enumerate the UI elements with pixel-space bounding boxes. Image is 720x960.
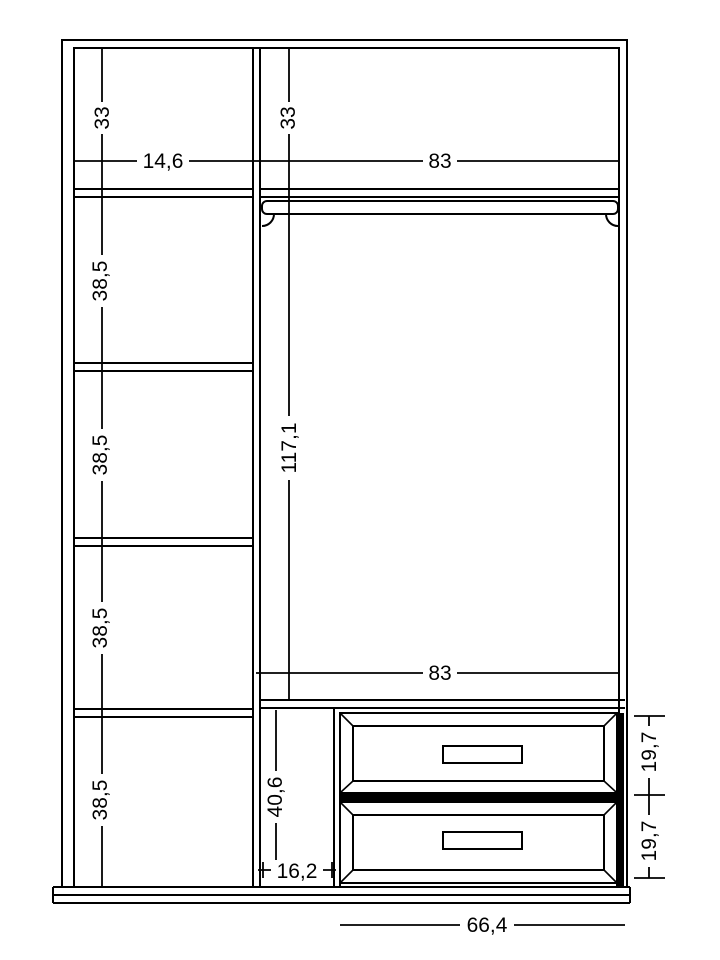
dim-value: 33 xyxy=(277,106,300,129)
base-plinth xyxy=(53,887,630,903)
dim-label-drawer-height-bottom: 19,7 xyxy=(638,815,661,867)
dim-value: 40,6 xyxy=(264,777,287,818)
dim-label-right-bottom-width: 83 xyxy=(423,662,457,685)
dim-value: 38,5 xyxy=(89,608,112,649)
technical-drawing-page: 33 14,6 33 83 38,5 38,5 117,1 38 xyxy=(0,0,720,960)
dim-value: 33 xyxy=(91,106,114,129)
dim-label-drawer-height-top: 19,7 xyxy=(638,726,661,778)
drawer-front-bevel xyxy=(353,726,604,781)
dim-label-slot-width: 16,2 xyxy=(271,860,323,883)
bevel-corner-line xyxy=(604,870,616,882)
drawer-handle-bottom xyxy=(443,832,522,849)
dim-value: 19,7 xyxy=(638,732,661,773)
drawer-front-bevel xyxy=(353,815,604,870)
drawer-front-bottom xyxy=(340,802,617,883)
dim-label-hanging-height: 117,1 xyxy=(278,416,301,480)
bevel-corner-line xyxy=(341,870,353,882)
dim-value: 66,4 xyxy=(467,914,508,937)
drawer-front-top xyxy=(340,713,617,793)
dim-value: 83 xyxy=(428,662,451,685)
dim-label-left-shelf-4: 38,5 xyxy=(89,774,112,826)
dim-value: 38,5 xyxy=(89,780,112,821)
rod-end-bracket-right xyxy=(606,214,618,226)
rod-end-bracket-left xyxy=(262,214,274,226)
bevel-corner-line xyxy=(341,781,353,792)
bevel-corner-line xyxy=(604,781,616,792)
dim-label-right-top-width: 83 xyxy=(423,150,457,173)
dim-value: 83 xyxy=(428,150,451,173)
dim-label-left-shelf-3: 38,5 xyxy=(89,602,112,654)
dim-value: 117,1 xyxy=(278,423,301,474)
wardrobe-section-drawing: 33 14,6 33 83 38,5 38,5 117,1 38 xyxy=(0,0,720,960)
dim-value: 19,7 xyxy=(638,821,661,862)
dim-value: 38,5 xyxy=(89,435,112,476)
dim-label-right-top-height: 33 xyxy=(277,102,300,134)
bevel-corner-line xyxy=(341,803,353,815)
right-section-shelves xyxy=(261,189,625,708)
rod-bar xyxy=(262,201,618,214)
dim-label-slot-height: 40,6 xyxy=(264,771,287,823)
drawer-unit xyxy=(334,708,624,886)
drawer-gap-band xyxy=(341,793,616,802)
dim-label-left-shelf-2: 38,5 xyxy=(89,429,112,481)
dim-label-drawer-width: 66,4 xyxy=(460,914,514,937)
dim-value: 38,5 xyxy=(89,261,112,302)
bevel-corner-line xyxy=(604,714,616,726)
hanging-rod xyxy=(262,201,618,226)
drawer-handle-top xyxy=(443,746,522,763)
bevel-corner-line xyxy=(341,714,353,726)
dim-value: 16,2 xyxy=(277,860,318,883)
dimension-labels: 33 14,6 33 83 38,5 38,5 117,1 38 xyxy=(89,102,661,937)
dim-label-left-shelf-1: 38,5 xyxy=(89,255,112,307)
dim-label-left-width: 14,6 xyxy=(137,150,189,173)
dim-value: 14,6 xyxy=(143,150,184,173)
bevel-corner-line xyxy=(604,803,616,815)
dim-label-left-top-height: 33 xyxy=(91,102,114,134)
